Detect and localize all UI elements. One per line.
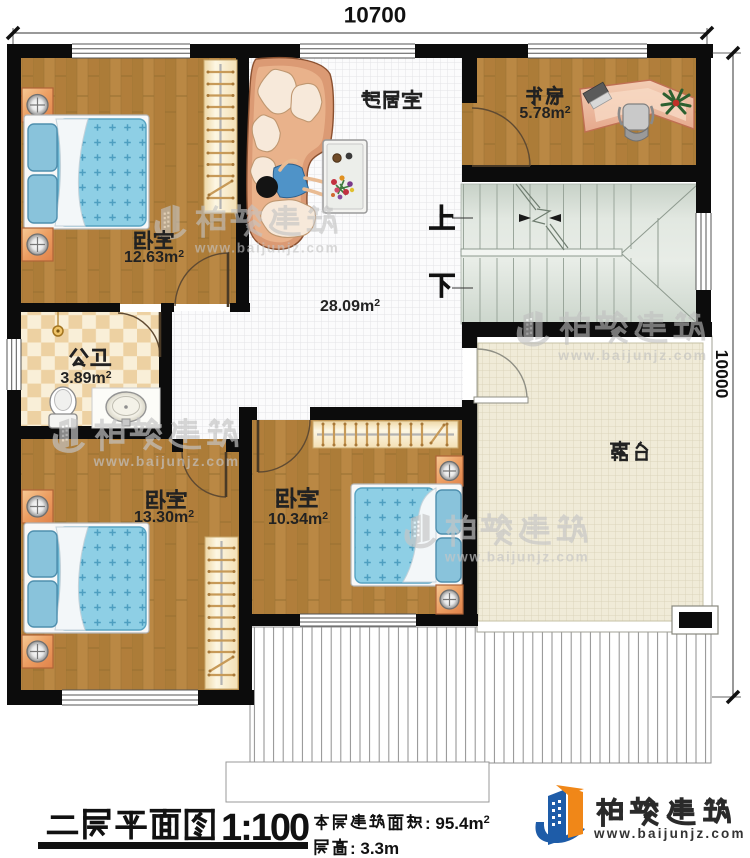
svg-text:28.09m2: 28.09m2 [320, 297, 380, 315]
svg-text:www.baijunjz.com: www.baijunjz.com [93, 454, 240, 469]
svg-text:: 3.3m: : 3.3m [350, 839, 399, 858]
svg-text:www.baijunjz.com: www.baijunjz.com [194, 240, 340, 255]
svg-text:13.30m2: 13.30m2 [134, 508, 194, 526]
svg-text:10700: 10700 [344, 3, 407, 28]
svg-text:10.34m2: 10.34m2 [268, 510, 328, 528]
svg-text:3.89m2: 3.89m2 [60, 369, 111, 387]
svg-text:10000: 10000 [712, 350, 732, 399]
svg-text:: 95.4m2: : 95.4m2 [425, 814, 490, 833]
svg-text:12.63m2: 12.63m2 [124, 248, 184, 266]
svg-text:5.78m2: 5.78m2 [519, 104, 570, 122]
svg-text:www.baijunjz.com: www.baijunjz.com [593, 826, 746, 841]
svg-text:www.baijunjz.com: www.baijunjz.com [444, 549, 590, 564]
svg-text:www.baijunjz.com: www.baijunjz.com [557, 347, 708, 363]
